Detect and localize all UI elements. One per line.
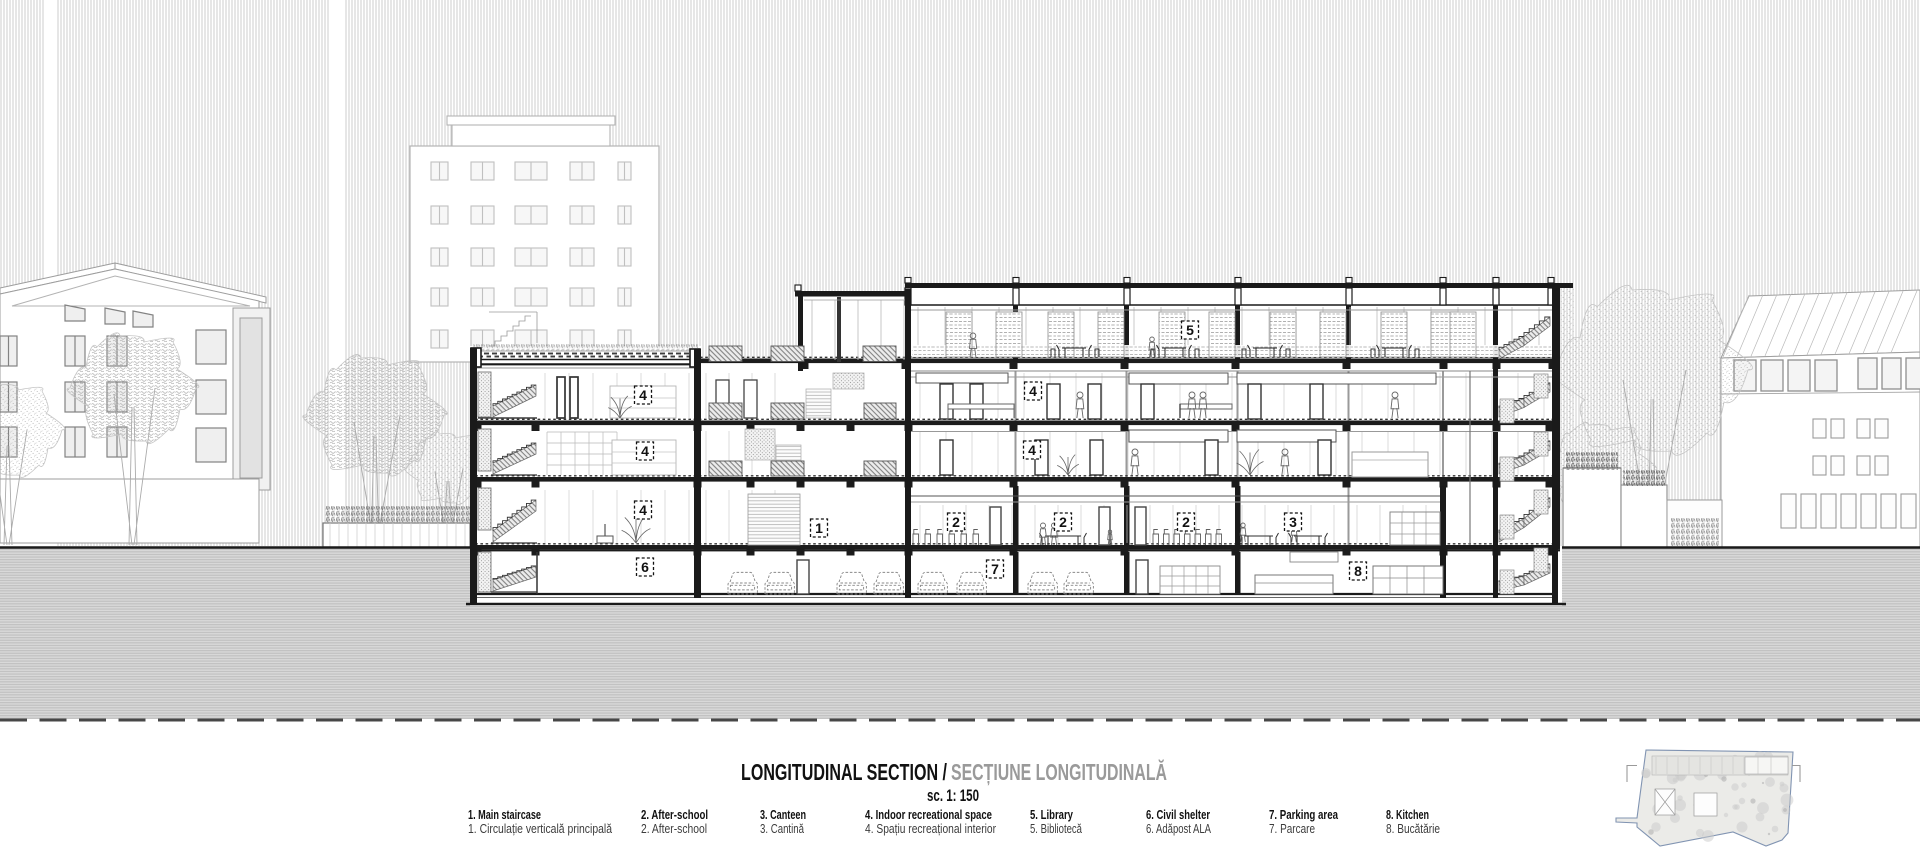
svg-text:7: 7	[991, 561, 999, 577]
svg-text:LONGITUDINAL SECTION /: LONGITUDINAL SECTION /	[741, 759, 947, 785]
svg-text:1. Circulație verticală princi: 1. Circulație verticală principală	[468, 822, 612, 836]
svg-text:2: 2	[952, 514, 960, 530]
svg-text:8: 8	[1354, 563, 1362, 579]
svg-text:5: 5	[1186, 322, 1194, 338]
svg-text:SECȚIUNE LONGITUDINALĂ: SECȚIUNE LONGITUDINALĂ	[951, 758, 1167, 785]
svg-text:7. Parcare: 7. Parcare	[1269, 822, 1315, 836]
svg-text:2: 2	[1182, 514, 1190, 530]
svg-text:3. Canteen: 3. Canteen	[760, 808, 806, 822]
svg-text:5. Bibliotecă: 5. Bibliotecă	[1030, 822, 1082, 836]
svg-text:1: 1	[815, 520, 823, 536]
svg-text:3: 3	[1289, 514, 1297, 530]
svg-text:8. Bucătărie: 8. Bucătărie	[1386, 822, 1440, 836]
svg-text:sc. 1: 150: sc. 1: 150	[927, 787, 979, 805]
svg-text:4. Indoor recreational space: 4. Indoor recreational space	[865, 808, 992, 822]
svg-text:4: 4	[641, 443, 649, 459]
svg-text:3. Cantină: 3. Cantină	[760, 822, 804, 836]
svg-text:1. Main staircase: 1. Main staircase	[468, 808, 541, 822]
svg-text:8. Kitchen: 8. Kitchen	[1386, 808, 1429, 822]
svg-text:6: 6	[641, 559, 649, 575]
svg-text:2. After-school: 2. After-school	[641, 808, 708, 822]
svg-text:4: 4	[1028, 442, 1036, 458]
svg-text:2: 2	[1059, 514, 1067, 530]
svg-text:2. After-school: 2. After-school	[641, 822, 707, 836]
svg-text:4: 4	[639, 502, 647, 518]
svg-text:4: 4	[1029, 383, 1037, 399]
svg-text:5. Library: 5. Library	[1030, 808, 1073, 822]
svg-text:6. Adăpost ALA: 6. Adăpost ALA	[1146, 822, 1211, 836]
svg-text:7. Parking area: 7. Parking area	[1269, 808, 1339, 822]
svg-text:4. Spațiu recreațional interio: 4. Spațiu recreațional interior	[865, 822, 996, 836]
svg-text:4: 4	[639, 387, 647, 403]
svg-text:6. Civil shelter: 6. Civil shelter	[1146, 808, 1210, 822]
